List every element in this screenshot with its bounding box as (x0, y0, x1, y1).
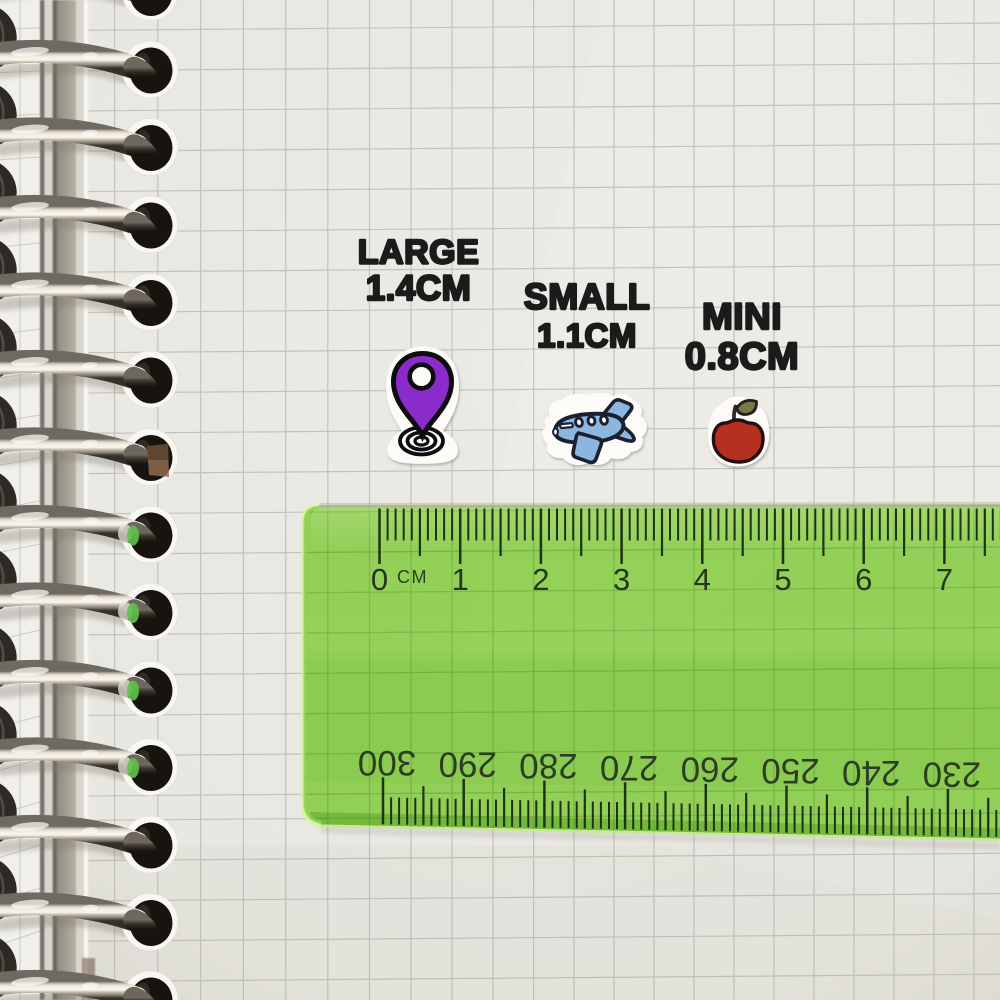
svg-text:250: 250 (761, 751, 819, 790)
svg-text:300: 300 (358, 743, 416, 782)
svg-text:7: 7 (936, 562, 953, 597)
svg-text:290: 290 (438, 745, 496, 784)
svg-text:0: 0 (371, 562, 388, 597)
svg-text:1.1CM: 1.1CM (537, 317, 637, 354)
svg-text:0.8CM: 0.8CM (685, 336, 799, 378)
svg-text:5: 5 (774, 562, 791, 597)
svg-text:3: 3 (613, 562, 630, 597)
svg-text:MINI: MINI (702, 296, 782, 337)
svg-text:CM: CM (397, 567, 428, 587)
svg-text:240: 240 (842, 753, 900, 792)
svg-text:260: 260 (681, 750, 739, 789)
svg-text:270: 270 (600, 748, 658, 787)
svg-text:230: 230 (923, 755, 981, 794)
svg-text:1.4CM: 1.4CM (366, 269, 472, 308)
svg-text:6: 6 (855, 562, 872, 597)
svg-text:SMALL: SMALL (524, 276, 650, 317)
svg-text:4: 4 (694, 562, 711, 597)
svg-text:1: 1 (452, 562, 469, 597)
svg-text:LARGE: LARGE (358, 234, 480, 272)
svg-text:2: 2 (532, 562, 549, 597)
svg-text:280: 280 (519, 746, 577, 785)
